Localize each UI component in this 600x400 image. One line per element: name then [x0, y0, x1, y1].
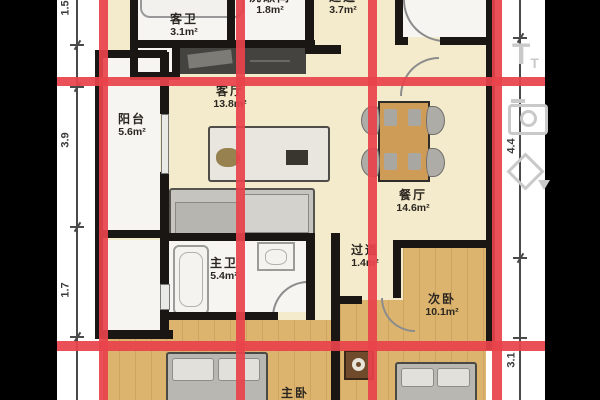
fill-tool-drip: [538, 180, 550, 190]
wall: [306, 233, 315, 320]
room-name: 主卧: [263, 386, 327, 400]
place-setting: [408, 153, 421, 170]
room-area: 13.8m²: [198, 98, 262, 111]
room-name: 餐厅: [381, 188, 445, 202]
wall: [305, 45, 341, 54]
wall: [160, 312, 278, 320]
text-tool-glyph-main: T: [512, 38, 530, 71]
camera-icon[interactable]: [508, 104, 548, 135]
room-label-living-room: 客厅 13.8m²: [198, 84, 262, 111]
tv-icon: [187, 49, 232, 68]
floor-left-room: [103, 240, 160, 330]
red-grid-vertical-line: [236, 0, 245, 400]
red-grid-vertical-line: [492, 0, 502, 400]
room-area: 5.6m²: [100, 126, 164, 139]
red-grid-horizontal-line: [57, 77, 545, 86]
room-name: 过道: [333, 243, 397, 257]
window-left-room: [160, 284, 170, 310]
dimension-label-left-0: 1.5: [60, 0, 72, 15]
coffee-table-rug: [208, 126, 330, 182]
wall: [440, 37, 486, 45]
room-area: 3.7m²: [311, 4, 375, 17]
room-label-guest-bathroom: 客卫 3.1m²: [152, 12, 216, 39]
red-grid-horizontal-line: [57, 341, 545, 351]
dimension-label-left-1: 3.9: [60, 132, 72, 147]
room-name: 主卫: [192, 256, 256, 270]
drum-dot: [356, 362, 361, 367]
tray-icon: [286, 150, 308, 165]
red-grid-vertical-line: [368, 0, 377, 400]
room-label-hallway-small: 过道 1.4m²: [333, 243, 397, 270]
sofa-cushion: [175, 202, 239, 235]
wall: [130, 40, 315, 48]
counter-line: [250, 60, 290, 62]
room-name: 客厅: [198, 84, 262, 98]
room-label-balcony: 阳台 5.6m²: [100, 112, 164, 139]
room-label-master-bathroom: 主卫 5.4m²: [192, 256, 256, 283]
dimension-label-left-2: 1.7: [60, 282, 72, 297]
place-setting: [384, 153, 397, 170]
sink-basin: [265, 249, 287, 265]
room-area: 1.8m²: [238, 4, 302, 17]
room-label-hallway-top: 过道 3.7m²: [311, 0, 375, 17]
wall: [227, 0, 235, 42]
room-name: 阳台: [100, 112, 164, 126]
room-area: 14.6m²: [381, 202, 445, 215]
pillow: [437, 368, 470, 387]
room-area: 10.1m²: [410, 306, 474, 319]
bed-master: [166, 352, 268, 400]
wall: [160, 172, 169, 238]
ruler-tick: [513, 337, 527, 339]
room-name: 次卧: [410, 292, 474, 306]
room-label-master-bedroom: 主卧: [263, 386, 327, 400]
sink: [257, 242, 295, 271]
room-area: 5.4m²: [192, 270, 256, 283]
place-setting: [408, 109, 421, 126]
camera-flash-bar: [511, 99, 525, 103]
wall: [393, 240, 495, 248]
dining-table: [378, 101, 430, 182]
room-label-secondary-bedroom: 次卧 10.1m²: [410, 292, 474, 319]
sofa-chaise: [243, 194, 309, 233]
floorplan-screenshot: 客卫 3.1m² 洗漱间 1.8m² 过道 3.7m² 客厅 13.8m² 阳台…: [0, 0, 600, 400]
room-label-washroom: 洗漱间 1.8m²: [238, 0, 302, 17]
dimension-label-right-0: 4.4: [506, 138, 518, 153]
dimension-label-right-1: 3.1: [506, 352, 518, 367]
text-tool-icon[interactable]: TT: [512, 38, 539, 72]
wall: [172, 48, 180, 74]
room-name: 客卫: [152, 12, 216, 26]
pillow: [172, 358, 214, 381]
washing-machine-drum: [352, 358, 365, 371]
wall: [398, 37, 408, 45]
camera-lens: [520, 110, 537, 127]
pillow: [401, 368, 434, 387]
bed-secondary: [395, 362, 477, 400]
room-area: 3.1m²: [152, 26, 216, 39]
room-label-dining-room: 餐厅 14.6m²: [381, 188, 445, 215]
wall: [340, 296, 362, 304]
text-tool-glyph-sub: T: [530, 55, 539, 71]
room-area: 1.4m²: [333, 257, 397, 270]
red-grid-vertical-line: [99, 0, 108, 400]
place-setting: [384, 109, 397, 126]
